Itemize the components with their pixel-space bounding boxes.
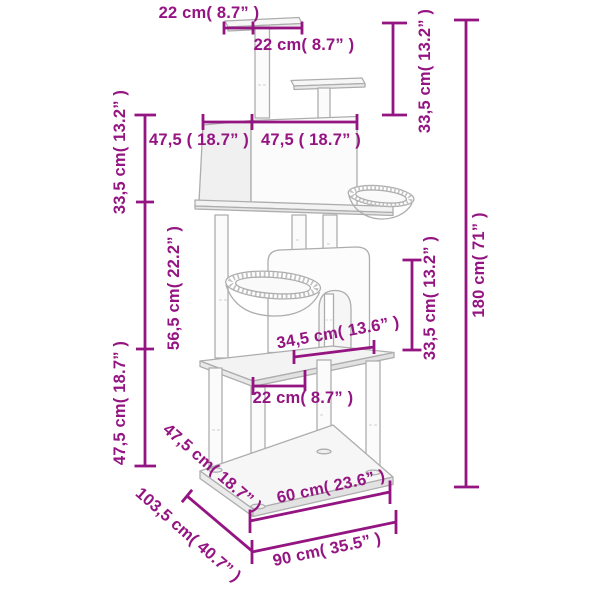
middle-platform: [200, 346, 394, 387]
dim-label-platform-front: 22 cm( 8.7” ): [253, 390, 354, 407]
diagram-artwork: [0, 0, 600, 600]
upper-side-plate: [291, 78, 365, 118]
dim-label-top-plate-width: 22 cm( 8.7” ): [254, 37, 355, 54]
dim-line-left-heights: [135, 115, 157, 466]
cat-tree-drawing: [195, 18, 415, 517]
dim-label-top-plate-depth: 22 cm( 8.7” ): [159, 5, 260, 22]
dim-line-middle-right-height: [403, 260, 422, 350]
dimension-diagram: 22 cm( 8.7” ) 22 cm( 8.7” ) 47,5 ( 18.7”…: [0, 0, 600, 600]
dim-label-middle-right-height: 33,5 cm( 13.2” ): [422, 236, 439, 360]
dim-label-condo-depth: 47,5 ( 18.7” ): [149, 132, 249, 149]
dim-label-top-section-height: 33,5 cm( 13.2” ): [417, 9, 434, 133]
dim-label-middle-left-height: 56,5 cm( 22.2” ): [166, 226, 183, 350]
dim-label-lower-left-height: 47,5 cm( 18.7” ): [112, 341, 129, 465]
dim-line-top-section-height: [382, 23, 407, 115]
dim-label-total-height: 180 cm( 71” ): [471, 212, 488, 317]
dim-label-condo-width: 47,5 ( 18.7” ): [261, 132, 361, 149]
dim-label-upper-left-height: 33,5 cm( 13.2” ): [112, 90, 129, 214]
